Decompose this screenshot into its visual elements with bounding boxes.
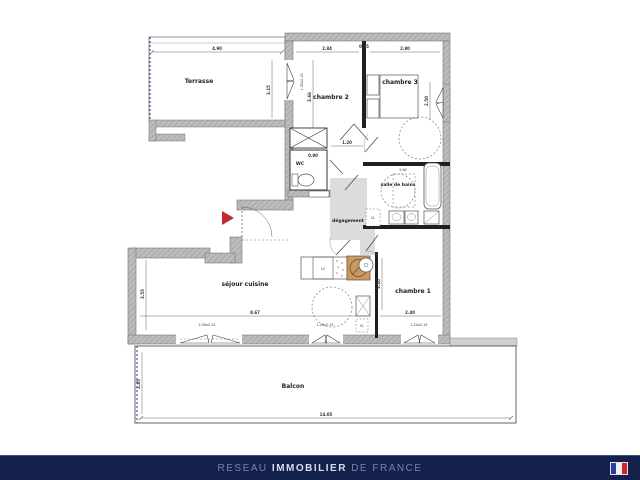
chambre2-height-dim: 3.66	[307, 92, 312, 102]
water-heater	[359, 258, 373, 272]
room-balcon: Balcon 14.05 2.85	[135, 338, 517, 423]
chambre1-window-dim: 1.20x2.15	[410, 323, 427, 327]
sdb-width-dim: 2.60	[399, 168, 407, 172]
floor-plan-area: Terrasse 4.90 3.15 chambre 2 2.84 0.95	[0, 0, 640, 455]
flag-red-band	[622, 463, 627, 474]
sejour-width-dim: 8.67	[250, 310, 260, 315]
french-flag-icon	[611, 463, 627, 474]
brand-bold: IMMOBILIER	[272, 463, 347, 474]
footer-bar: RESEAU IMMOBILIER DE FRANCE	[0, 455, 640, 480]
sejour-cuisine-label: séjour cuisine	[222, 281, 269, 288]
balcon-height-dim: 2.85	[136, 379, 141, 389]
terrasse-height-dim: 3.15	[266, 85, 271, 95]
brand-prefix: RESEAU	[218, 463, 272, 474]
chambre3-width-dim: 2.80	[400, 46, 410, 51]
wc-label: WC	[296, 161, 305, 167]
balcon-width-dim: 14.05	[320, 412, 333, 417]
room-chambre-2: chambre 2 2.84 0.95 3.66 1.35x2.15	[284, 44, 369, 140]
room-terrasse: Terrasse 4.90 3.15	[149, 37, 285, 141]
degagement-label: dégagement	[332, 217, 365, 224]
brand-text: RESEAU IMMOBILIER DE FRANCE	[218, 463, 423, 474]
sejour-window-mid-dim: 1.20x2.15	[316, 323, 333, 327]
wc-width-dim: 0.90	[308, 153, 318, 158]
entrance-arrow-icon	[222, 211, 234, 225]
floor-plan: Terrasse 4.90 3.15 chambre 2 2.84 0.95	[0, 0, 640, 455]
chambre2-window-dim: 1.35x2.15	[300, 73, 304, 90]
chambre2-label: chambre 2	[313, 94, 349, 101]
chambre3-height-dim: 2.50	[424, 96, 429, 106]
balcon-label: Balcon	[282, 383, 305, 390]
chambre1-width-dim: 2.40	[405, 310, 415, 315]
salle-de-bains-label: salle de bains	[381, 182, 416, 188]
wall-gap-dim: 0.95	[359, 44, 369, 49]
page: { "footer": { "brand_prefix": "RESEAU ",…	[0, 0, 640, 480]
dishwasher-label: LV	[321, 267, 326, 271]
chambre3-label: chambre 3	[382, 79, 418, 86]
room-salle-de-bains: salle de bains 2.60 CL	[366, 163, 441, 226]
closet2-label: CL	[360, 324, 364, 328]
terrasse-label: Terrasse	[185, 78, 214, 85]
chambre2-width-dim: 2.84	[322, 46, 332, 51]
hall-width-dim: 1.20	[342, 140, 352, 145]
terrasse-width-dim: 4.90	[212, 46, 222, 51]
brand-suffix: DE FRANCE	[347, 463, 423, 474]
chambre1-label: chambre 1	[395, 288, 431, 295]
sejour-height-dim: 3.55	[140, 289, 145, 299]
sejour-window-left-dim: 2.40x2.15	[198, 323, 215, 327]
closet-label: CL	[371, 216, 375, 220]
room-chambre-3: chambre 3 2.80 2.50	[364, 46, 450, 159]
chambre1-height-dim: 3.10	[376, 279, 381, 289]
